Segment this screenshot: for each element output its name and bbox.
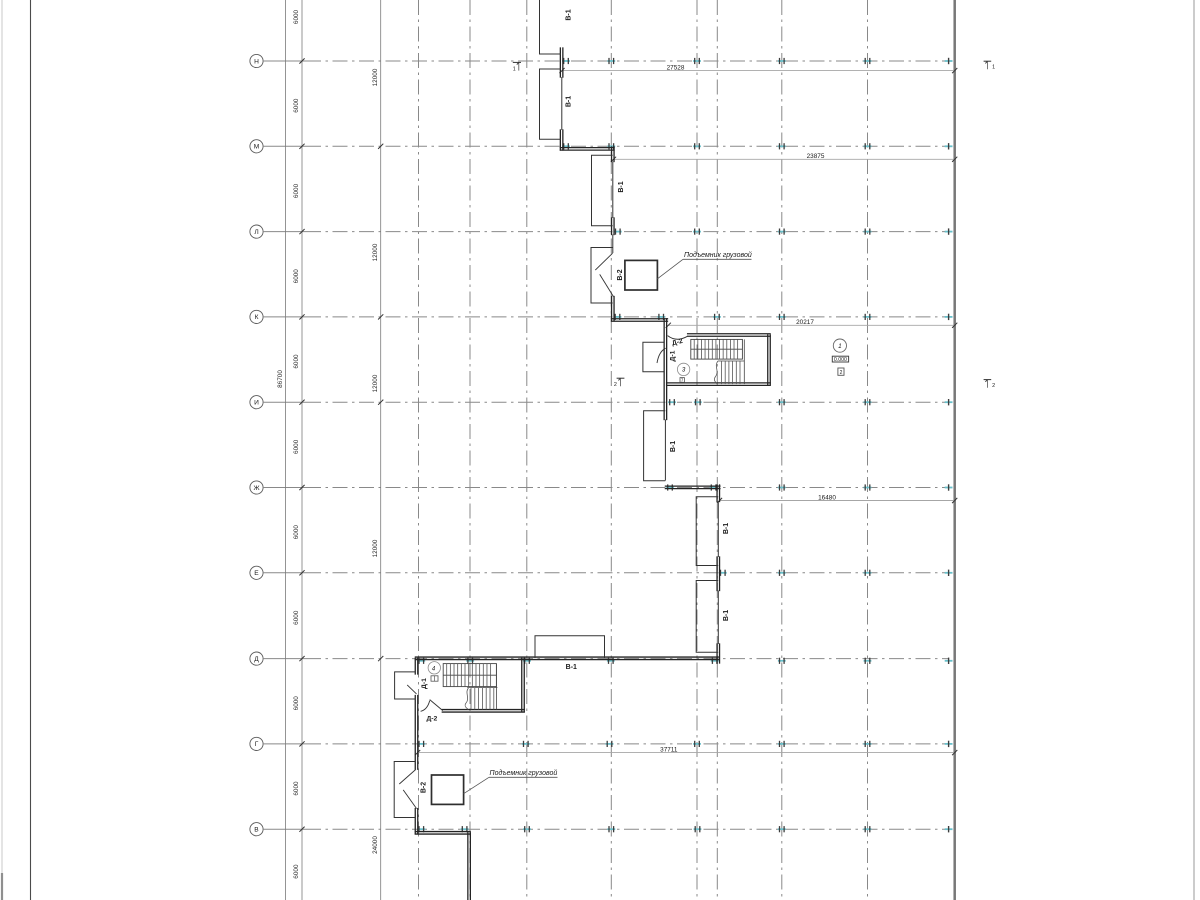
svg-text:6000: 6000	[293, 696, 300, 711]
svg-text:6000: 6000	[293, 781, 300, 796]
svg-text:Подъемник грузовой: Подъемник грузовой	[684, 251, 752, 259]
svg-text:В-1: В-1	[566, 9, 573, 20]
svg-text:1: 1	[513, 66, 516, 72]
svg-text:В-1: В-1	[566, 664, 577, 671]
svg-text:Д-1: Д-1	[670, 350, 677, 361]
svg-text:М: М	[254, 144, 260, 151]
svg-text:В-2: В-2	[617, 269, 624, 280]
svg-text:20217: 20217	[796, 319, 814, 326]
svg-text:1: 1	[838, 343, 842, 350]
svg-text:Н: Н	[254, 58, 259, 65]
svg-text:6000: 6000	[293, 354, 300, 369]
svg-text:6000: 6000	[293, 9, 300, 24]
svg-text:16480: 16480	[818, 494, 836, 501]
svg-text:Ж: Ж	[253, 485, 259, 492]
svg-text:Е: Е	[254, 570, 259, 577]
svg-text:27528: 27528	[667, 65, 685, 72]
svg-text:2: 2	[614, 382, 617, 388]
svg-text:6000: 6000	[293, 610, 300, 625]
svg-text:3: 3	[682, 367, 686, 374]
svg-text:12000: 12000	[372, 68, 379, 86]
svg-text:2: 2	[840, 370, 843, 376]
svg-text:Д-2: Д-2	[426, 716, 437, 723]
svg-text:12000: 12000	[372, 243, 379, 261]
svg-text:6000: 6000	[293, 183, 300, 198]
svg-text:В-2: В-2	[421, 782, 428, 793]
svg-text:2: 2	[992, 383, 995, 389]
svg-text:К: К	[255, 314, 259, 321]
svg-text:И: И	[254, 400, 259, 407]
svg-text:0.000: 0.000	[834, 357, 847, 363]
svg-text:6000: 6000	[293, 439, 300, 454]
svg-text:1: 1	[992, 64, 995, 70]
svg-text:86700: 86700	[277, 370, 284, 388]
svg-text:6000: 6000	[293, 269, 300, 284]
svg-text:В-1: В-1	[618, 181, 625, 192]
svg-text:6000: 6000	[293, 864, 300, 879]
svg-text:24000: 24000	[372, 836, 379, 854]
svg-text:Д-1: Д-1	[421, 678, 428, 689]
svg-text:23875: 23875	[807, 153, 825, 160]
svg-text:В-1: В-1	[670, 441, 677, 452]
svg-text:37711: 37711	[660, 747, 678, 754]
svg-text:6000: 6000	[293, 525, 300, 540]
svg-text:Подъемник грузовой: Подъемник грузовой	[490, 769, 558, 777]
svg-text:В: В	[254, 827, 259, 834]
svg-text:В-1: В-1	[723, 523, 730, 534]
svg-text:Д: Д	[254, 656, 259, 663]
svg-text:В-1: В-1	[723, 610, 730, 621]
svg-text:12000: 12000	[372, 374, 379, 392]
svg-text:6000: 6000	[293, 98, 300, 113]
svg-text:Л: Л	[254, 229, 258, 236]
svg-text:Г: Г	[255, 741, 259, 748]
svg-text:12000: 12000	[372, 539, 379, 557]
svg-text:В-1: В-1	[566, 96, 573, 107]
